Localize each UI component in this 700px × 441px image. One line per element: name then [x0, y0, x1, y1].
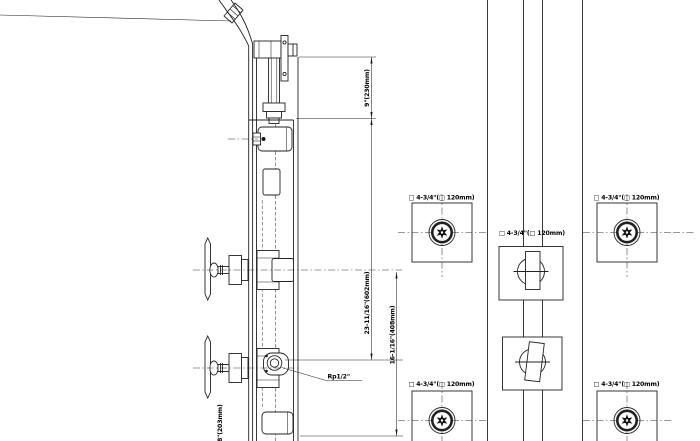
technical-drawing: Rp1/2" 9"(230mm) 23-11/16"(602mm) 16-1/1…	[0, 0, 700, 441]
plate-size-label-top-left: □ 4-3/4"(□ 120mm)	[409, 195, 475, 202]
lever-handle-upper	[526, 252, 541, 290]
dimensions: 9"(230mm) 23-11/16"(602mm) 16-1/16"(408m…	[217, 57, 403, 441]
plate-size-label-middle: □ 4-3/4"(□ 120mm)	[499, 230, 565, 237]
knob-plate-top-right	[583, 194, 671, 277]
dimension-arm-height: 9"(230mm)	[364, 69, 371, 107]
side-view: Rp1/2" 9"(230mm) 23-11/16"(602mm) 16-1/1…	[0, 0, 403, 441]
port-label: Rp1/2"	[328, 374, 350, 381]
shower-head	[0, 0, 257, 441]
front-view: □ 4-3/4"(□ 120mm) □ 4-3/4"(□ 120mm) □ 4-…	[398, 0, 696, 441]
valve-assembly-upper	[205, 238, 279, 300]
dimension-panel-height: 23-11/16"(602mm)	[364, 271, 371, 334]
wall-mount-bracket	[254, 36, 297, 82]
knob-plate-bottom-right	[583, 382, 671, 441]
knob-plate-top-left	[398, 194, 486, 277]
plate-size-label-bottom-right: □ 4-3/4"(□ 120mm)	[594, 381, 660, 388]
cad-drawing-canvas: Rp1/2" 9"(230mm) 23-11/16"(602mm) 16-1/1…	[0, 0, 700, 441]
dimension-bottom: 8"(203mm)	[217, 404, 224, 441]
plate-size-label-top-right: □ 4-3/4"(□ 120mm)	[594, 195, 660, 202]
dimension-valve-spacing: 16-1/16"(408mm)	[390, 305, 397, 364]
diverter-trim-lower	[503, 337, 563, 390]
diverter-trim-upper	[499, 247, 563, 301]
plate-size-label-bottom-left: □ 4-3/4"(□ 120mm)	[409, 381, 475, 388]
knob-plate-bottom-left	[398, 382, 486, 441]
